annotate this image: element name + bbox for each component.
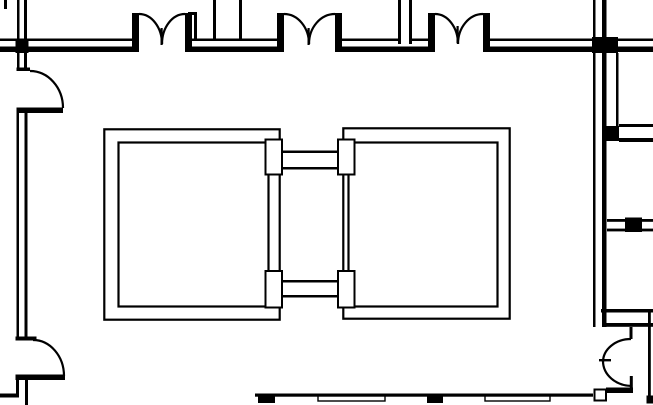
wall-line: [606, 388, 633, 394]
wall-line: [192, 47, 277, 53]
wall-stub: [213, 0, 216, 40]
door-leaf-tick: [308, 28, 310, 45]
wall-block: [647, 396, 653, 404]
wall-line: [604, 323, 653, 327]
door-leaf: [17, 108, 64, 114]
door-leaf: [630, 327, 633, 339]
wall-line: [593, 53, 596, 327]
wall-line: [602, 0, 607, 39]
door-hinge-block: [595, 390, 607, 401]
door-leaf-tick: [161, 28, 163, 45]
wall-line: [490, 47, 593, 53]
connector-line: [282, 167, 339, 170]
wall-line: [24, 53, 27, 68]
wall-stub: [194, 12, 197, 40]
shaft-door-jamb: [266, 140, 283, 175]
wall-line: [490, 39, 593, 42]
wall-line: [342, 39, 398, 42]
door-leaf: [16, 375, 66, 381]
shaft-door-jamb: [338, 271, 355, 308]
wall-line: [412, 39, 428, 42]
wall-junction: [16, 39, 29, 54]
wall-junction: [592, 37, 618, 53]
wall-line: [342, 47, 428, 53]
wall-block: [427, 397, 443, 404]
window-strip: [318, 396, 385, 401]
wall-line: [601, 309, 653, 313]
wall-line: [24, 0, 27, 39]
wall-stub: [398, 0, 401, 44]
drawing-background: [0, 0, 653, 405]
door-leaf: [630, 376, 633, 389]
wall-line: [618, 47, 653, 53]
door-jamb: [132, 13, 139, 52]
wall-line: [17, 53, 20, 68]
door-jamb: [483, 13, 490, 52]
door-leaf-tick: [599, 359, 611, 361]
wall-line: [17, 113, 20, 337]
wall-line: [648, 313, 651, 398]
wall-junction: [604, 126, 619, 141]
wall-line: [25, 380, 28, 405]
door-jamb: [428, 13, 435, 52]
wall-line: [0, 394, 19, 398]
shaft-door-jamb: [338, 140, 355, 175]
wall-stub: [4, 0, 7, 9]
connector-line: [282, 295, 339, 298]
wall-line: [602, 53, 607, 327]
wall-stub: [409, 0, 412, 44]
window-strip: [485, 396, 550, 401]
branch-wall-line: [619, 138, 653, 142]
door-jamb: [277, 13, 284, 52]
wall-line: [25, 113, 28, 337]
wall-line: [616, 53, 619, 126]
wall-line: [618, 39, 653, 42]
wall-line: [17, 0, 20, 39]
branch-wall-line: [619, 124, 653, 127]
door-jamb: [185, 13, 192, 52]
shaft-door-jamb: [266, 271, 283, 308]
wall-stub: [239, 0, 242, 40]
wall-line: [593, 0, 596, 39]
wall-junction: [625, 218, 642, 233]
connector-line: [282, 280, 339, 283]
connector-line: [282, 151, 339, 154]
wall-block: [258, 397, 275, 404]
door-jamb: [335, 13, 342, 52]
wall-end-cap: [17, 68, 31, 72]
floor-plan-canvas: Top corridor wall (double line) with thr…: [0, 0, 653, 405]
wall-line: [192, 39, 277, 42]
door-leaf-tick: [457, 26, 459, 43]
